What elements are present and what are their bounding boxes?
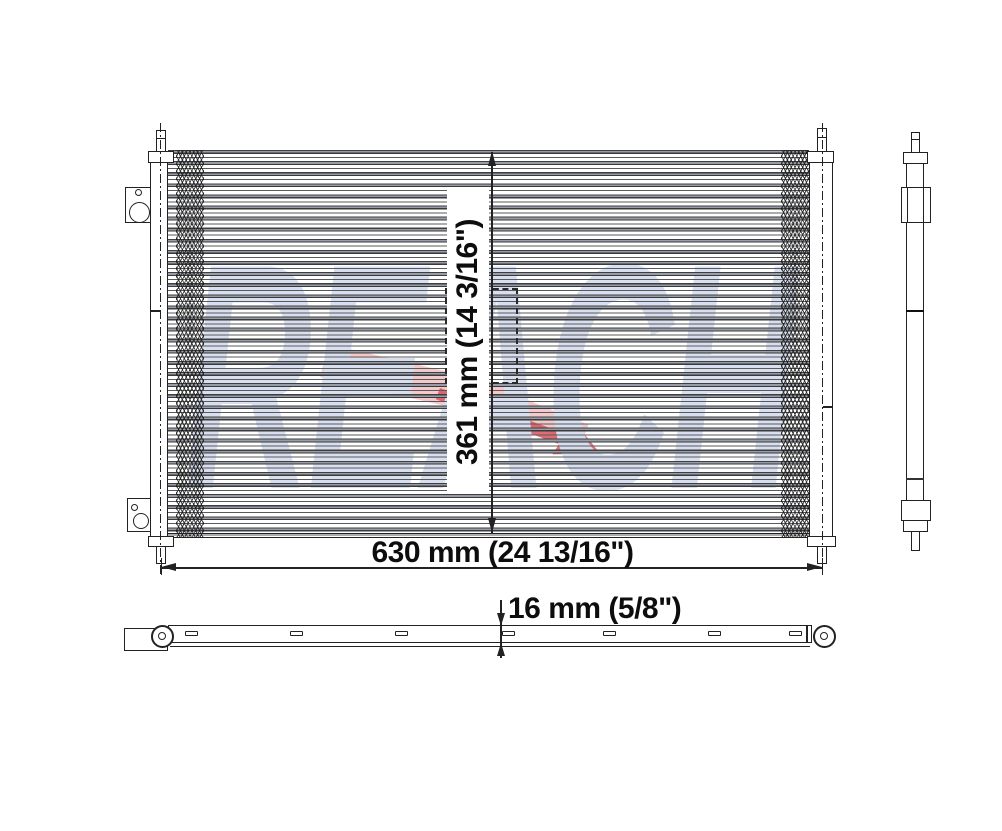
- centerline-left-tank: [160, 123, 161, 575]
- bottom-view-slot: [502, 631, 515, 637]
- fin-pattern-right: [781, 150, 809, 538]
- bracket-hole-small-lower: [131, 504, 138, 511]
- bottom-view-slot: [603, 631, 616, 637]
- side-view-pin-bottom: [911, 531, 920, 551]
- side-view-pin-tick-top: [911, 139, 920, 140]
- bottom-view-left-port-hole: [158, 632, 166, 640]
- tank-weld-tick-right: [823, 406, 833, 408]
- side-view-neck-top: [906, 163, 924, 188]
- bracket-hole-large-upper: [129, 202, 150, 223]
- bottom-view-slot: [789, 631, 802, 637]
- fitting-cap-top-right: [807, 151, 834, 163]
- height-arrow-bottom: [488, 518, 496, 533]
- depth-arrow-top: [497, 613, 505, 626]
- height-dimension-label-strip: 361 mm (14 3/16"): [447, 190, 489, 494]
- bottom-view-right-port-hole: [820, 632, 828, 640]
- height-dimension-line: [491, 152, 493, 533]
- bottom-view-bar-inner-edge: [170, 646, 810, 647]
- depth-arrow-bottom: [497, 643, 505, 656]
- side-view-flange-top: [901, 187, 931, 223]
- side-view-flange-bottom: [901, 500, 931, 521]
- side-view-body: [906, 222, 924, 501]
- bottom-view-bar-end-line: [806, 626, 808, 643]
- side-view-joint-line-lower: [906, 478, 924, 480]
- height-arrow-top: [488, 151, 496, 166]
- bottom-view-slot: [185, 631, 198, 637]
- side-view-flange-inner-line: [923, 188, 924, 222]
- fin-pattern-left: [176, 150, 204, 538]
- side-view-pin-top: [911, 132, 920, 153]
- centerline-right-tank: [822, 123, 823, 575]
- condenser-diagram: REACH: [0, 0, 1002, 831]
- bracket-hole-small-upper: [135, 189, 142, 196]
- bottom-view-slot: [708, 631, 721, 637]
- tank-weld-tick-left: [150, 310, 160, 312]
- height-dimension-label: 361 mm (14 3/16"): [451, 219, 485, 465]
- side-view-joint-line-upper: [906, 310, 924, 312]
- bottom-view-slot: [395, 631, 408, 637]
- bottom-view-slot: [290, 631, 303, 637]
- bracket-hole-large-lower: [133, 513, 149, 529]
- width-dimension-label: 630 mm (24 13/16"): [161, 536, 822, 570]
- header-tank-left: [150, 162, 168, 537]
- side-view-flange-inner-line: [907, 188, 908, 222]
- depth-dimension-label: 16 mm (5/8"): [508, 592, 681, 626]
